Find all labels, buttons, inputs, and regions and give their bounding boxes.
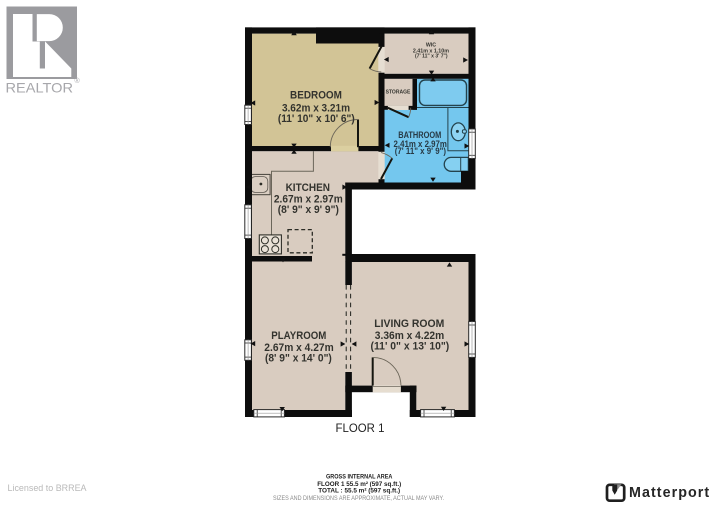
svg-text:Licensed to BRREA: Licensed to BRREA <box>8 483 88 493</box>
svg-text:FLOOR 1: FLOOR 1 <box>336 421 385 435</box>
svg-text:BEDROOM: BEDROOM <box>290 90 342 102</box>
svg-text:(7' 11" x 9' 9"): (7' 11" x 9' 9") <box>395 146 446 157</box>
svg-text:STORAGE: STORAGE <box>386 90 411 96</box>
svg-text:(8' 9" x 14' 0"): (8' 9" x 14' 0") <box>265 353 332 365</box>
svg-text:®: ® <box>75 77 81 85</box>
svg-text:(11' 0" x 13' 10"): (11' 0" x 13' 10") <box>371 341 450 353</box>
svg-text:(8' 9" x 9' 9"): (8' 9" x 9' 9") <box>278 204 339 216</box>
svg-text:SIZES AND DIMENSIONS ARE APPRO: SIZES AND DIMENSIONS ARE APPROXIMATE, AC… <box>273 496 444 502</box>
svg-text:GROSS INTERNAL AREA: GROSS INTERNAL AREA <box>326 473 393 480</box>
svg-text:Matterport: Matterport <box>629 485 710 501</box>
svg-text:(7' 11" x 3' 7"): (7' 11" x 3' 7") <box>415 54 448 60</box>
svg-text:TOTAL : 55.5 m² (597 sq.ft.): TOTAL : 55.5 m² (597 sq.ft.) <box>318 488 400 495</box>
svg-text:PLAYROOM: PLAYROOM <box>271 330 326 342</box>
svg-text:REALTOR: REALTOR <box>6 80 74 96</box>
svg-text:KITCHEN: KITCHEN <box>286 182 330 194</box>
svg-text:(11' 10" x 10' 6"): (11' 10" x 10' 6") <box>278 113 355 125</box>
svg-text:LIVING ROOM: LIVING ROOM <box>374 318 444 330</box>
